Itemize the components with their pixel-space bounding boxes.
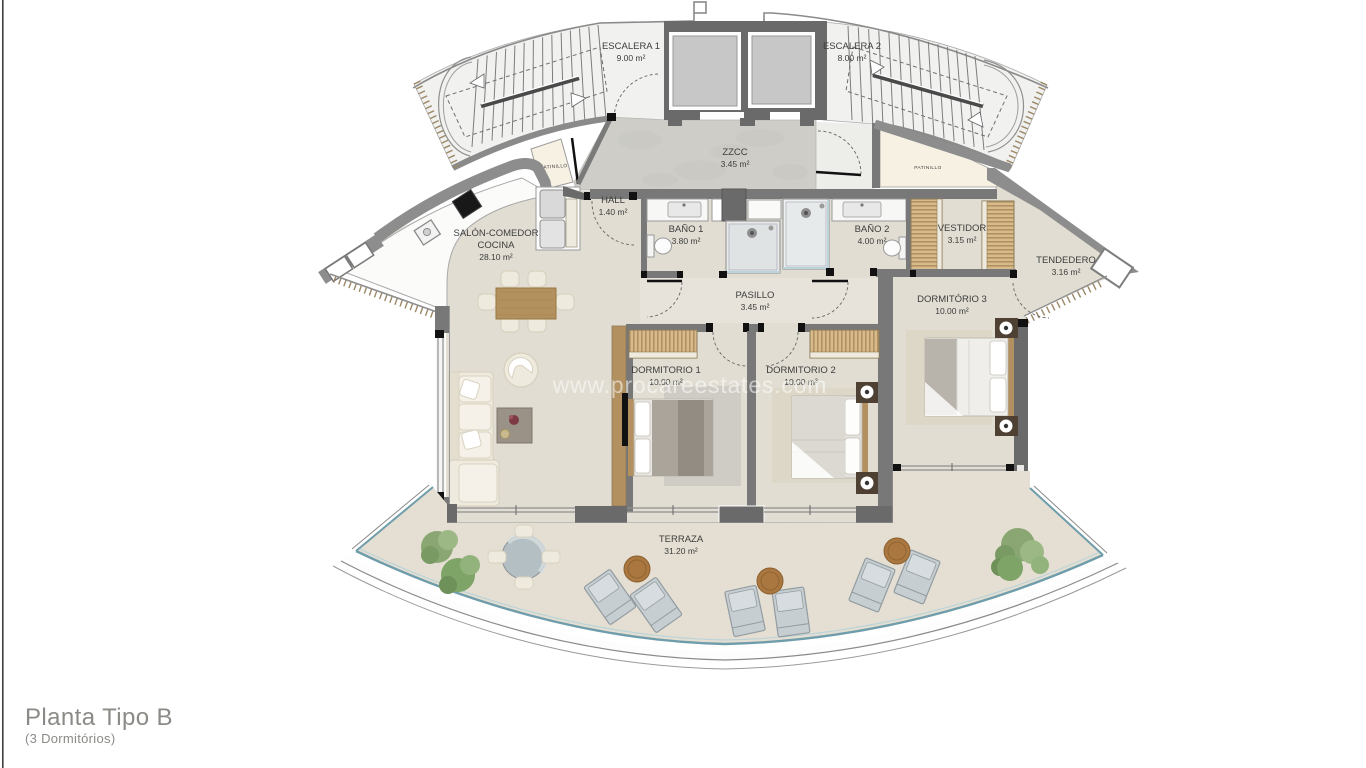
svg-text:www.procareestates.com: www.procareestates.com <box>552 372 828 398</box>
svg-text:(3 Dormitórios): (3 Dormitórios) <box>25 731 115 746</box>
svg-text:3.16 m²: 3.16 m² <box>1052 267 1081 277</box>
svg-text:PASILLO: PASILLO <box>736 290 775 301</box>
svg-text:HALL: HALL <box>601 195 625 206</box>
svg-text:VESTIDOR: VESTIDOR <box>938 223 987 234</box>
svg-text:31.20 m²: 31.20 m² <box>664 546 698 556</box>
svg-text:Planta Tipo B: Planta Tipo B <box>25 704 173 731</box>
svg-text:3.80 m²: 3.80 m² <box>672 236 701 246</box>
svg-text:SALÓN-COMEDOR: SALÓN-COMEDOR <box>454 228 539 239</box>
svg-text:28.10 m²: 28.10 m² <box>479 252 513 262</box>
svg-text:TENDEDERO: TENDEDERO <box>1036 255 1096 266</box>
svg-text:ZZCC: ZZCC <box>722 147 747 158</box>
svg-text:3.45 m²: 3.45 m² <box>721 159 750 169</box>
svg-text:1.40 m²: 1.40 m² <box>599 207 628 217</box>
svg-text:ESCALERA 2: ESCALERA 2 <box>823 41 881 52</box>
svg-text:BAÑO 1: BAÑO 1 <box>669 224 704 235</box>
svg-text:4.00 m²: 4.00 m² <box>858 236 887 246</box>
svg-text:3.45 m²: 3.45 m² <box>741 302 770 312</box>
svg-text:9.00 m²: 9.00 m² <box>617 53 646 63</box>
svg-text:10.00 m²: 10.00 m² <box>935 306 969 316</box>
svg-text:COCINA: COCINA <box>478 240 516 251</box>
svg-text:TERRAZA: TERRAZA <box>659 534 704 545</box>
svg-text:PATINILLO: PATINILLO <box>914 165 941 171</box>
svg-text:ESCALERA 1: ESCALERA 1 <box>602 41 660 52</box>
svg-text:3.15 m²: 3.15 m² <box>948 235 977 245</box>
svg-text:BAÑO 2: BAÑO 2 <box>855 224 890 235</box>
svg-text:8.00 m²: 8.00 m² <box>838 53 867 63</box>
svg-text:DORMITÓRIO 3: DORMITÓRIO 3 <box>917 294 987 305</box>
